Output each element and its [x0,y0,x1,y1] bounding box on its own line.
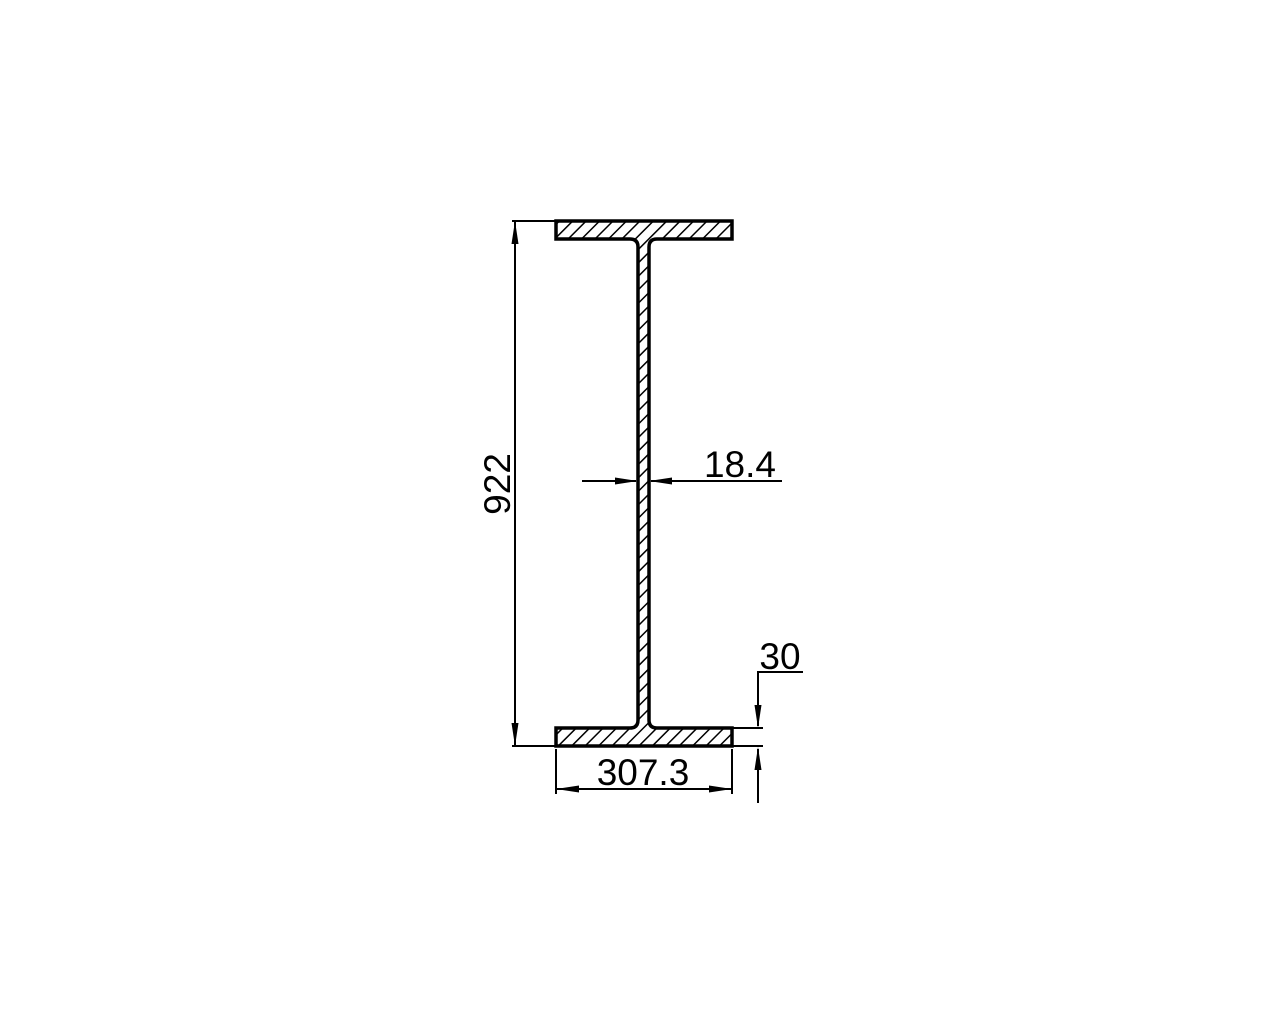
dim-web-label: 18.4 [704,444,776,485]
drawing-canvas: 922 18.4 30 307.3 [0,0,1280,1024]
dim-height-label: 922 [477,453,518,515]
dim-flange-width-label: 307.3 [597,752,690,793]
ibeam-drawing: 922 18.4 30 307.3 [0,0,1280,1024]
dim-flange-thickness-label: 30 [759,636,800,677]
